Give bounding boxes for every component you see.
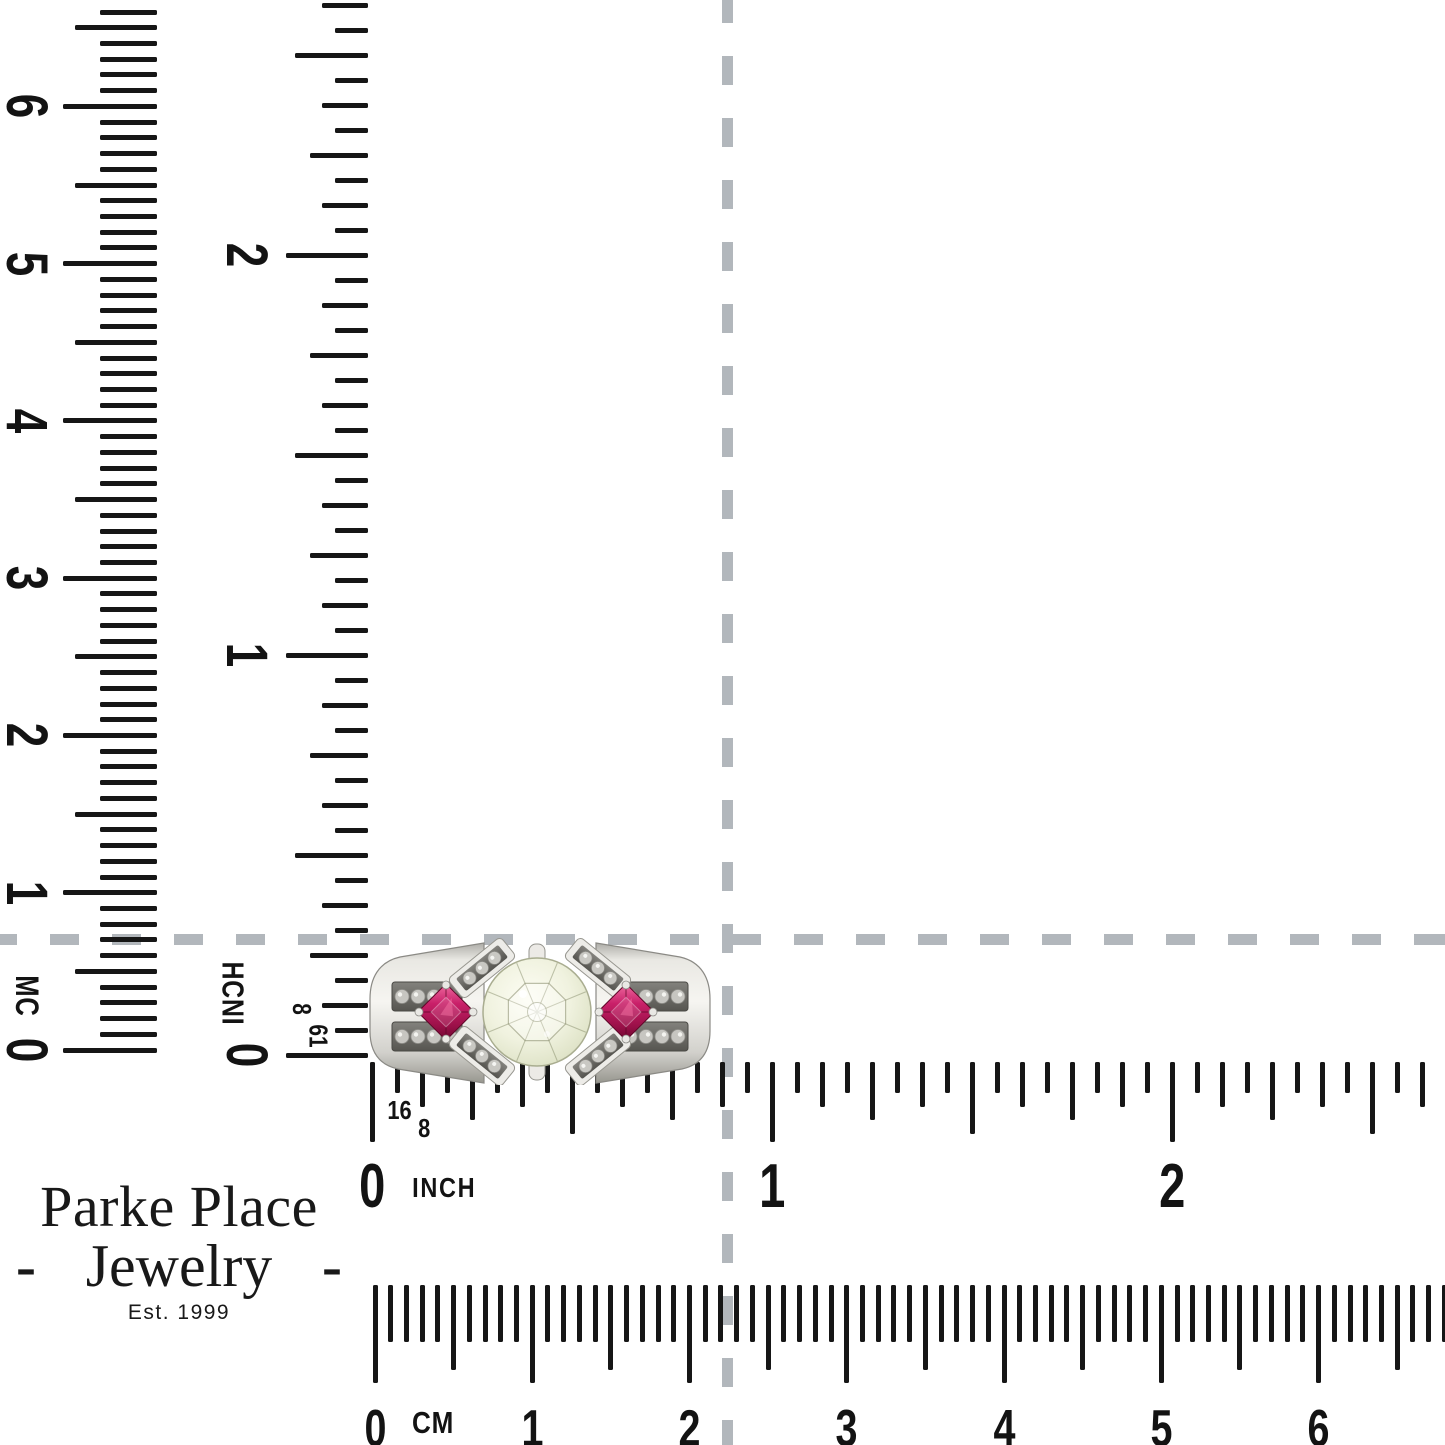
ruler-tick xyxy=(100,591,157,596)
ruler-tick xyxy=(420,1285,425,1342)
ruler-tick xyxy=(100,293,157,298)
ruler-tick xyxy=(1206,1285,1211,1342)
ruler-tick xyxy=(1159,1285,1164,1383)
ruler-tick xyxy=(100,560,157,565)
ruler-tick xyxy=(1345,1062,1350,1093)
ruler-tick xyxy=(1080,1285,1085,1370)
ruler-tick xyxy=(322,503,368,508)
ruler-tick xyxy=(75,25,157,30)
ruler-tick xyxy=(100,529,157,534)
ruler-tick xyxy=(624,1285,629,1342)
ruler-tick xyxy=(1285,1285,1290,1342)
jewelry-scale-photo: MC 0123456 HCNI 8 61 012 INCH 16 8 012 C… xyxy=(0,0,1445,1445)
ruler-tick xyxy=(745,1062,750,1093)
horizontal-inch-eighth-label: 8 xyxy=(407,1114,441,1142)
ruler-tick xyxy=(1096,1285,1101,1342)
ruler-tick xyxy=(75,497,157,502)
ruler-tick xyxy=(467,1285,472,1342)
vertical-inch-unit-label: HCNI xyxy=(198,953,268,1033)
ruler-tick xyxy=(895,1062,900,1093)
ruler-tick xyxy=(920,1062,925,1107)
ruler-tick xyxy=(1363,1285,1368,1342)
ruler-tick xyxy=(322,103,368,108)
ruler-number: 5 xyxy=(1113,1396,1209,1445)
ruler-tick xyxy=(797,1285,802,1342)
ruler-number: 1 xyxy=(212,621,280,689)
ruler-tick xyxy=(100,513,157,518)
ruler-tick xyxy=(310,753,368,758)
ruler-tick xyxy=(435,1285,440,1342)
brand-name: Parke Place xyxy=(16,1178,342,1236)
ruler-tick xyxy=(939,1285,944,1342)
ruler-tick xyxy=(820,1062,825,1107)
ruler-tick xyxy=(100,623,157,628)
ruler-tick xyxy=(1095,1062,1100,1093)
established-year: Est. 1999 xyxy=(16,1301,342,1325)
ruler-tick xyxy=(770,1062,775,1142)
ruler-tick xyxy=(295,853,368,858)
ruler-tick xyxy=(781,1285,786,1342)
ruler-tick xyxy=(844,1285,849,1383)
ruler-tick xyxy=(1045,1062,1050,1093)
horizontal-inch-sixteenth-label: 16 xyxy=(380,1096,418,1124)
ruler-tick xyxy=(100,749,157,754)
ruler-tick xyxy=(1033,1285,1038,1342)
ruler-number: 2 xyxy=(1124,1154,1220,1220)
ruler-tick xyxy=(335,928,368,933)
ruler-tick xyxy=(286,1053,368,1058)
ruler-tick xyxy=(100,41,157,46)
ruler-tick xyxy=(1348,1285,1353,1342)
ruler-tick xyxy=(1127,1285,1132,1342)
ruler-tick xyxy=(986,1285,991,1342)
ruler-number: 0 xyxy=(212,1021,280,1089)
crosshair-vertical-dashed-line xyxy=(722,0,733,1445)
ruler-tick xyxy=(1020,1062,1025,1107)
ruler-tick xyxy=(75,340,157,345)
ruler-tick xyxy=(63,1048,157,1053)
ruler-tick xyxy=(100,686,157,691)
ruler-tick xyxy=(100,906,157,911)
ruler-tick xyxy=(1017,1285,1022,1342)
ruler-tick xyxy=(75,183,157,188)
ruler-tick xyxy=(335,278,368,283)
ruler-tick xyxy=(335,728,368,733)
ruler-tick xyxy=(335,678,368,683)
ruler-tick xyxy=(1220,1062,1225,1107)
ruler-tick xyxy=(907,1285,912,1342)
horizontal-inch-unit-label: INCH xyxy=(399,1170,489,1206)
ruler-tick xyxy=(945,1062,950,1093)
ruler-tick xyxy=(100,308,157,313)
ruler-tick xyxy=(870,1062,875,1120)
ruler-tick xyxy=(100,717,157,722)
ruler-tick xyxy=(63,733,157,738)
ruler-tick xyxy=(1320,1062,1325,1107)
ruler-tick xyxy=(1170,1062,1175,1142)
ruler-tick xyxy=(295,53,368,58)
ruler-tick xyxy=(295,453,368,458)
ruler-tick xyxy=(1426,1285,1431,1342)
ruler-tick xyxy=(1070,1062,1075,1120)
ruler-tick xyxy=(703,1285,708,1342)
ruler-tick xyxy=(100,780,157,785)
ruler-tick xyxy=(1237,1285,1242,1370)
ruler-tick xyxy=(995,1062,1000,1093)
ruler-tick xyxy=(335,328,368,333)
ruler-tick xyxy=(100,764,157,769)
ruler-tick xyxy=(561,1285,566,1342)
ruler-tick xyxy=(63,261,157,266)
ruler-tick xyxy=(1145,1062,1150,1093)
ruler-tick xyxy=(310,153,368,158)
ruler-tick xyxy=(1002,1285,1007,1383)
vertical-cm-unit-label: MC xyxy=(0,962,62,1030)
ruler-tick xyxy=(63,890,157,895)
ruler-tick xyxy=(100,277,157,282)
ruler-tick xyxy=(100,403,157,408)
ruler-tick xyxy=(404,1285,409,1342)
ruler-tick xyxy=(1410,1285,1415,1342)
ruler-tick xyxy=(498,1285,503,1342)
ruler-tick xyxy=(656,1285,661,1342)
ruler-tick xyxy=(100,10,157,15)
ruler-tick xyxy=(100,875,157,880)
ring-photo xyxy=(362,935,718,1085)
ruler-tick xyxy=(100,702,157,707)
ruler-tick xyxy=(63,418,157,423)
ruler-tick xyxy=(514,1285,519,1342)
ruler-tick xyxy=(100,371,157,376)
ruler-tick xyxy=(373,1285,378,1383)
ruler-tick xyxy=(100,466,157,471)
ruler-tick xyxy=(608,1285,613,1370)
ruler-tick xyxy=(1270,1062,1275,1120)
ruler-tick xyxy=(1269,1285,1274,1342)
ruler-tick xyxy=(813,1285,818,1342)
ruler-tick xyxy=(335,878,368,883)
ruler-tick xyxy=(1190,1285,1195,1342)
ruler-tick xyxy=(100,245,157,250)
ruler-tick xyxy=(545,1285,550,1342)
ruler-tick xyxy=(322,803,368,808)
brand-subtitle: - Jewelry - xyxy=(16,1236,342,1296)
ruler-tick xyxy=(100,607,157,612)
ruler-tick xyxy=(100,985,157,990)
ruler-number: 0 xyxy=(0,1016,60,1084)
ruler-tick xyxy=(671,1285,676,1342)
ruler-number: 6 xyxy=(1271,1396,1367,1445)
ruler-tick xyxy=(1143,1285,1148,1342)
ruler-tick xyxy=(954,1285,959,1342)
ruler-tick xyxy=(100,230,157,235)
ruler-tick xyxy=(100,1000,157,1005)
ruler-number: 4 xyxy=(0,387,60,455)
ruler-tick xyxy=(322,3,368,8)
ruler-tick xyxy=(63,104,157,109)
ruler-tick xyxy=(1245,1062,1250,1093)
ruler-tick xyxy=(322,603,368,608)
ruler-tick xyxy=(100,1016,157,1021)
ruler-tick xyxy=(335,628,368,633)
ruler-tick xyxy=(335,578,368,583)
ruler-tick xyxy=(335,128,368,133)
ruler-tick xyxy=(1064,1285,1069,1342)
subtitle-dash-left: - xyxy=(16,1236,36,1296)
ruler-tick xyxy=(75,812,157,817)
ruler-tick xyxy=(310,553,368,558)
ruler-tick xyxy=(100,859,157,864)
ruler-number: 3 xyxy=(799,1396,895,1445)
ruler-tick xyxy=(1395,1285,1400,1370)
ruler-tick xyxy=(335,778,368,783)
ruler-tick xyxy=(335,528,368,533)
ruler-number: 2 xyxy=(0,701,60,769)
ruler-tick xyxy=(335,178,368,183)
ruler-tick xyxy=(310,353,368,358)
ruler-tick xyxy=(100,827,157,832)
ruler-tick xyxy=(100,796,157,801)
brand-logo: Parke Place - Jewelry - Est. 1999 xyxy=(16,1178,342,1325)
ruler-number: 1 xyxy=(484,1396,580,1445)
ruler-tick xyxy=(577,1285,582,1342)
ruler-tick xyxy=(970,1285,975,1342)
ruler-tick xyxy=(100,135,157,140)
ruler-tick xyxy=(322,903,368,908)
vertical-inch-sixteenth-label: 61 xyxy=(299,1018,337,1054)
ruler-tick xyxy=(335,378,368,383)
ruler-tick xyxy=(1300,1285,1305,1342)
ruler-number: 1 xyxy=(724,1154,820,1220)
ruler-tick xyxy=(829,1285,834,1342)
ruler-tick xyxy=(1049,1285,1054,1342)
ruler-tick xyxy=(322,203,368,208)
ruler-tick xyxy=(100,434,157,439)
ruler-tick xyxy=(322,403,368,408)
ruler-tick xyxy=(335,478,368,483)
ruler-tick xyxy=(335,78,368,83)
ruler-tick xyxy=(734,1285,739,1342)
ruler-tick xyxy=(335,428,368,433)
ruler-tick xyxy=(640,1285,645,1342)
ruler-tick xyxy=(75,654,157,659)
ruler-tick xyxy=(100,356,157,361)
ruler-tick xyxy=(923,1285,928,1370)
ruler-number: 3 xyxy=(0,544,60,612)
ruler-tick xyxy=(1295,1062,1300,1093)
ruler-tick xyxy=(483,1285,488,1342)
ruler-tick xyxy=(335,28,368,33)
ruler-number: 0 xyxy=(327,1396,423,1445)
ruler-tick xyxy=(100,324,157,329)
ruler-tick xyxy=(100,843,157,848)
ruler-tick xyxy=(100,450,157,455)
ruler-number: 4 xyxy=(956,1396,1052,1445)
ruler-tick xyxy=(100,57,157,62)
ruler-tick xyxy=(100,481,157,486)
ruler-number: 2 xyxy=(212,221,280,289)
ruler-tick xyxy=(100,922,157,927)
ruler-tick xyxy=(335,228,368,233)
crosshair-horizontal-dashed-line xyxy=(0,934,1445,945)
ruler-tick xyxy=(530,1285,535,1383)
ruler-tick xyxy=(1112,1285,1117,1342)
ruler-tick xyxy=(100,544,157,549)
ruler-tick xyxy=(100,214,157,219)
ruler-tick xyxy=(100,167,157,172)
ruler-tick xyxy=(100,1032,157,1037)
ruler-tick xyxy=(845,1062,850,1093)
ruler-tick xyxy=(322,303,368,308)
ruler-tick xyxy=(687,1285,692,1383)
ruler-tick xyxy=(335,828,368,833)
ruler-tick xyxy=(100,670,157,675)
ruler-tick xyxy=(795,1062,800,1093)
vertical-inch-eighth-label: 8 xyxy=(284,991,320,1027)
ruler-tick xyxy=(593,1285,598,1342)
ruler-tick xyxy=(970,1062,975,1134)
ruler-tick xyxy=(310,953,368,958)
ruler-tick xyxy=(100,151,157,156)
ruler-tick xyxy=(286,653,368,658)
ruler-tick xyxy=(100,88,157,93)
ruler-tick xyxy=(1420,1062,1425,1107)
ruler-tick xyxy=(451,1285,456,1370)
horizontal-cm-unit-label: CM xyxy=(402,1404,464,1440)
ruler-tick xyxy=(1316,1285,1321,1383)
ruler-tick xyxy=(891,1285,896,1342)
ruler-tick xyxy=(100,387,157,392)
ruler-tick xyxy=(63,576,157,581)
subtitle-word: Jewelry xyxy=(86,1236,273,1296)
ruler-number: 6 xyxy=(0,72,60,140)
ruler-tick xyxy=(1195,1062,1200,1093)
ruler-tick xyxy=(750,1285,755,1342)
ruler-tick xyxy=(1370,1062,1375,1134)
ruler-tick xyxy=(1222,1285,1227,1342)
ruler-tick xyxy=(876,1285,881,1342)
subtitle-dash-right: - xyxy=(322,1236,342,1296)
ruler-tick xyxy=(100,198,157,203)
ruler-tick xyxy=(75,969,157,974)
ruler-tick xyxy=(100,72,157,77)
ruler-tick xyxy=(766,1285,771,1370)
ruler-tick xyxy=(860,1285,865,1342)
ruler-tick xyxy=(1379,1285,1384,1342)
ruler-tick xyxy=(100,120,157,125)
ruler-tick xyxy=(100,953,157,958)
ruler-tick xyxy=(1332,1285,1337,1342)
ruler-tick xyxy=(388,1285,393,1342)
ruler-tick xyxy=(1120,1062,1125,1107)
ruler-tick xyxy=(1395,1062,1400,1093)
ruler-tick xyxy=(322,703,368,708)
ruler-tick xyxy=(1175,1285,1180,1342)
ruler-number: 5 xyxy=(0,230,60,298)
ruler-number: 1 xyxy=(0,859,60,927)
ruler-tick xyxy=(100,639,157,644)
ruler-tick xyxy=(1253,1285,1258,1342)
ruler-tick xyxy=(286,253,368,258)
